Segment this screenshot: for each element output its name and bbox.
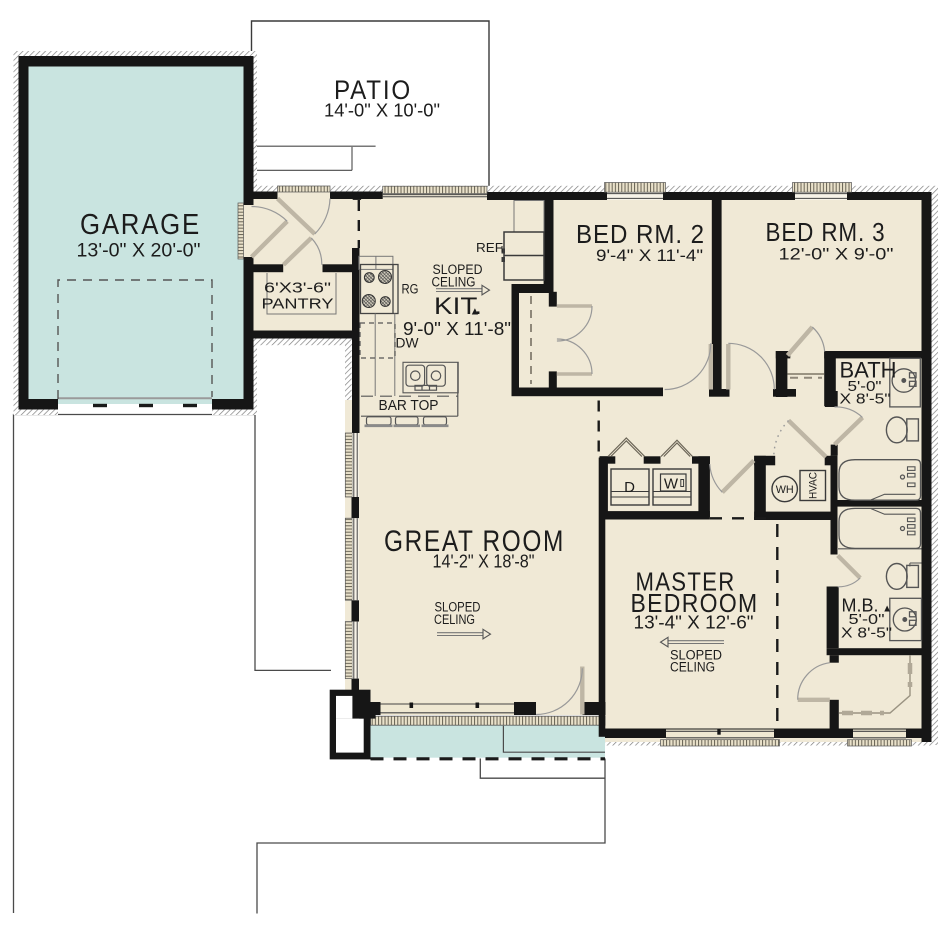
svg-text:6'X3'-6": 6'X3'-6" (264, 280, 331, 297)
svg-text:W: W (664, 476, 679, 493)
svg-text:BED RM. 3: BED RM. 3 (766, 217, 886, 247)
svg-text:9'-0" X 11'-8": 9'-0" X 11'-8" (403, 319, 511, 339)
svg-text:HVAC: HVAC (808, 472, 820, 499)
svg-text:14'-2" X 18'-8": 14'-2" X 18'-8" (433, 552, 535, 572)
svg-text:14'-0" X 10'-0": 14'-0" X 10'-0" (324, 101, 440, 121)
svg-text:GARAGE: GARAGE (80, 209, 201, 241)
svg-text:X 8'-5": X 8'-5" (841, 625, 892, 642)
svg-text:X 8'-5": X 8'-5" (840, 391, 891, 408)
svg-text:DW: DW (396, 336, 419, 351)
svg-text:13'-4" X 12'-6": 13'-4" X 12'-6" (634, 613, 754, 633)
svg-text:WH: WH (776, 484, 794, 496)
svg-text:CELING: CELING (434, 612, 475, 627)
svg-text:CELING: CELING (432, 275, 476, 290)
svg-text:KIT.: KIT. (434, 293, 482, 320)
svg-text:BED RM. 2: BED RM. 2 (576, 219, 705, 249)
svg-text:REF: REF (476, 240, 503, 255)
svg-text:RG: RG (402, 282, 419, 297)
svg-text:CELING: CELING (670, 660, 715, 675)
svg-text:13'-0" X 20'-0": 13'-0" X 20'-0" (77, 241, 201, 262)
svg-text:12'-0" X 9'-0": 12'-0" X 9'-0" (779, 245, 894, 264)
svg-text:9'-4" X 11'-4": 9'-4" X 11'-4" (596, 246, 703, 265)
svg-text:BAR TOP: BAR TOP (379, 398, 439, 414)
svg-text:PANTRY: PANTRY (262, 296, 334, 313)
svg-text:D: D (624, 479, 635, 496)
